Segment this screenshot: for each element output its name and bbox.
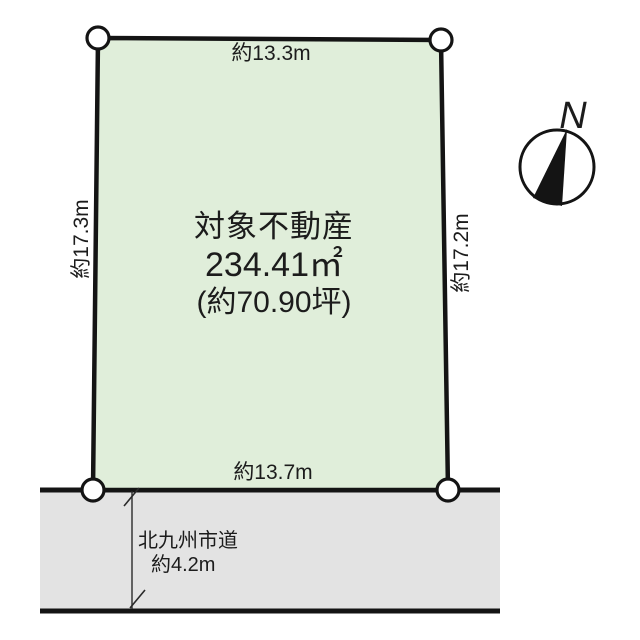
- plot-title: 対象不動産: [194, 209, 354, 244]
- road-area: [40, 490, 500, 611]
- compass: N: [520, 95, 594, 206]
- land-plot-diagram: 約13.3m 約13.7m 約17.3m 約17.2m 対象不動産 234.41…: [0, 0, 640, 640]
- plot-area-tsubo: (約70.90坪): [196, 286, 351, 319]
- corner-marker-bottom-right: [437, 479, 459, 501]
- right-dimension-label: 約17.2m: [450, 213, 473, 292]
- bottom-dimension-label: 約13.7m: [233, 461, 312, 484]
- land-plot-diagram-page: 約13.3m 約13.7m 約17.3m 約17.2m 対象不動産 234.41…: [0, 0, 640, 640]
- corner-marker-top-left: [87, 27, 109, 49]
- road-width-label: 約4.2m: [151, 553, 215, 576]
- left-dimension-label: 約17.3m: [70, 199, 93, 278]
- corner-marker-top-right: [430, 29, 452, 51]
- top-dimension-label: 約13.3m: [231, 42, 310, 65]
- road-name-label: 北九州市道: [138, 529, 238, 552]
- corner-marker-bottom-left: [82, 479, 104, 501]
- compass-north-label: N: [559, 95, 587, 137]
- plot-area-value: 234.41㎡: [205, 246, 343, 284]
